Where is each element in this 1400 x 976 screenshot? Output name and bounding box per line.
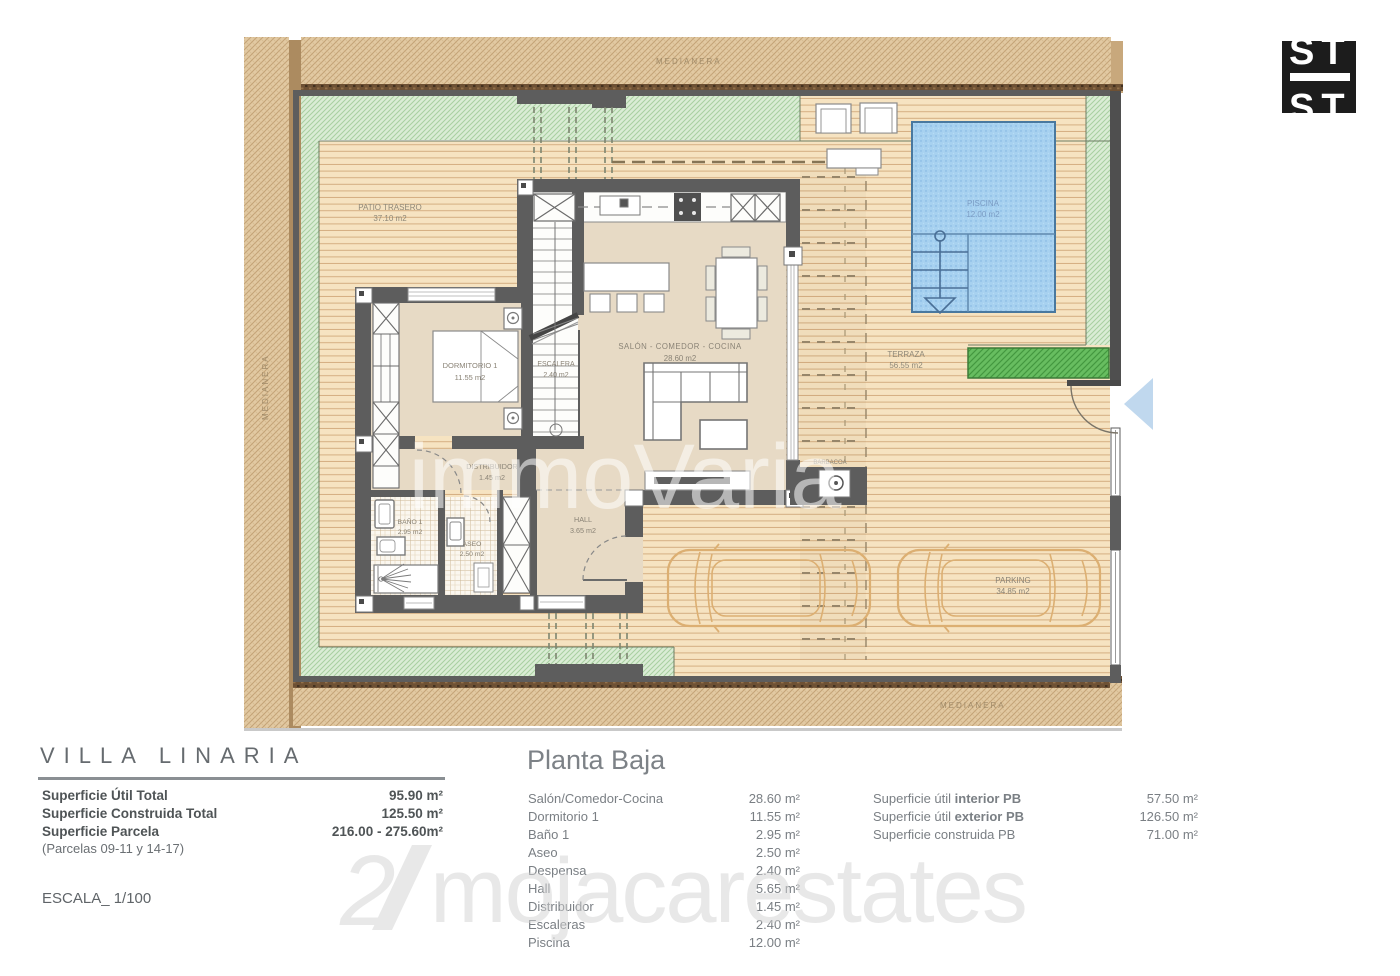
svg-text:Superficie Parcela: Superficie Parcela xyxy=(42,824,160,839)
svg-text:VILLA LINARIA: VILLA LINARIA xyxy=(40,743,307,768)
svg-text:MEDIANERA: MEDIANERA xyxy=(656,57,722,66)
svg-text:2.95 m2: 2.95 m2 xyxy=(398,529,423,536)
svg-text:MEDIANERA: MEDIANERA xyxy=(940,701,1006,710)
svg-text:mojacarestates: mojacarestates xyxy=(430,840,1026,942)
svg-text:DORMITORIO 1: DORMITORIO 1 xyxy=(443,361,498,370)
svg-text:Superficie útil interior PB: Superficie útil interior PB xyxy=(873,791,1021,806)
svg-text:PATIO TRASERO: PATIO TRASERO xyxy=(358,203,422,212)
svg-text:ESCALERA: ESCALERA xyxy=(537,361,575,368)
svg-text:TERRAZA: TERRAZA xyxy=(887,350,925,359)
svg-text:95.90 m²: 95.90 m² xyxy=(389,788,444,803)
svg-text:57.50 m²: 57.50 m² xyxy=(1147,791,1199,806)
svg-text:37.10 m2: 37.10 m2 xyxy=(373,214,407,223)
svg-text:immoVaria: immoVaria xyxy=(409,426,843,528)
svg-text:Dormitorio 1: Dormitorio 1 xyxy=(528,809,599,824)
svg-text:28.60 m2: 28.60 m2 xyxy=(664,354,697,363)
svg-text:2.50 m2: 2.50 m2 xyxy=(460,551,485,558)
svg-text:125.50 m²: 125.50 m² xyxy=(381,806,443,821)
svg-text:12.00 m2: 12.00 m2 xyxy=(966,210,1000,219)
svg-text:2: 2 xyxy=(339,835,396,947)
svg-text:Superficie Útil Total: Superficie Útil Total xyxy=(42,788,168,803)
svg-text:Superficie útil exterior PB: Superficie útil exterior PB xyxy=(873,809,1024,824)
svg-text:34.85 m2: 34.85 m2 xyxy=(996,587,1030,596)
svg-text:ASEO: ASEO xyxy=(463,541,482,548)
svg-text:11.55 m2: 11.55 m2 xyxy=(455,373,486,382)
svg-text:56.55 m2: 56.55 m2 xyxy=(889,361,923,370)
svg-text:ESCALA_ 1/100: ESCALA_ 1/100 xyxy=(42,890,151,907)
svg-text:MEDIANERA: MEDIANERA xyxy=(261,354,270,420)
svg-text:2.40 m2: 2.40 m2 xyxy=(543,372,568,379)
svg-text:(Parcelas 09-11 y 14-17): (Parcelas 09-11 y 14-17) xyxy=(42,841,184,856)
svg-text:28.60 m²: 28.60 m² xyxy=(749,791,801,806)
svg-text:Salón/Comedor-Cocina: Salón/Comedor-Cocina xyxy=(528,791,664,806)
svg-text:71.00 m²: 71.00 m² xyxy=(1147,827,1199,842)
svg-text:Planta Baja: Planta Baja xyxy=(527,745,666,775)
svg-text:126.50 m²: 126.50 m² xyxy=(1139,809,1198,824)
svg-text:11.55 m²: 11.55 m² xyxy=(750,809,801,824)
svg-text:PISCINA: PISCINA xyxy=(967,199,1000,208)
svg-text:PARKING: PARKING xyxy=(995,576,1030,585)
svg-text:Superficie Construida Total: Superficie Construida Total xyxy=(42,806,217,821)
svg-text:SALÓN - COMEDOR - COCINA: SALÓN - COMEDOR - COCINA xyxy=(618,342,742,351)
